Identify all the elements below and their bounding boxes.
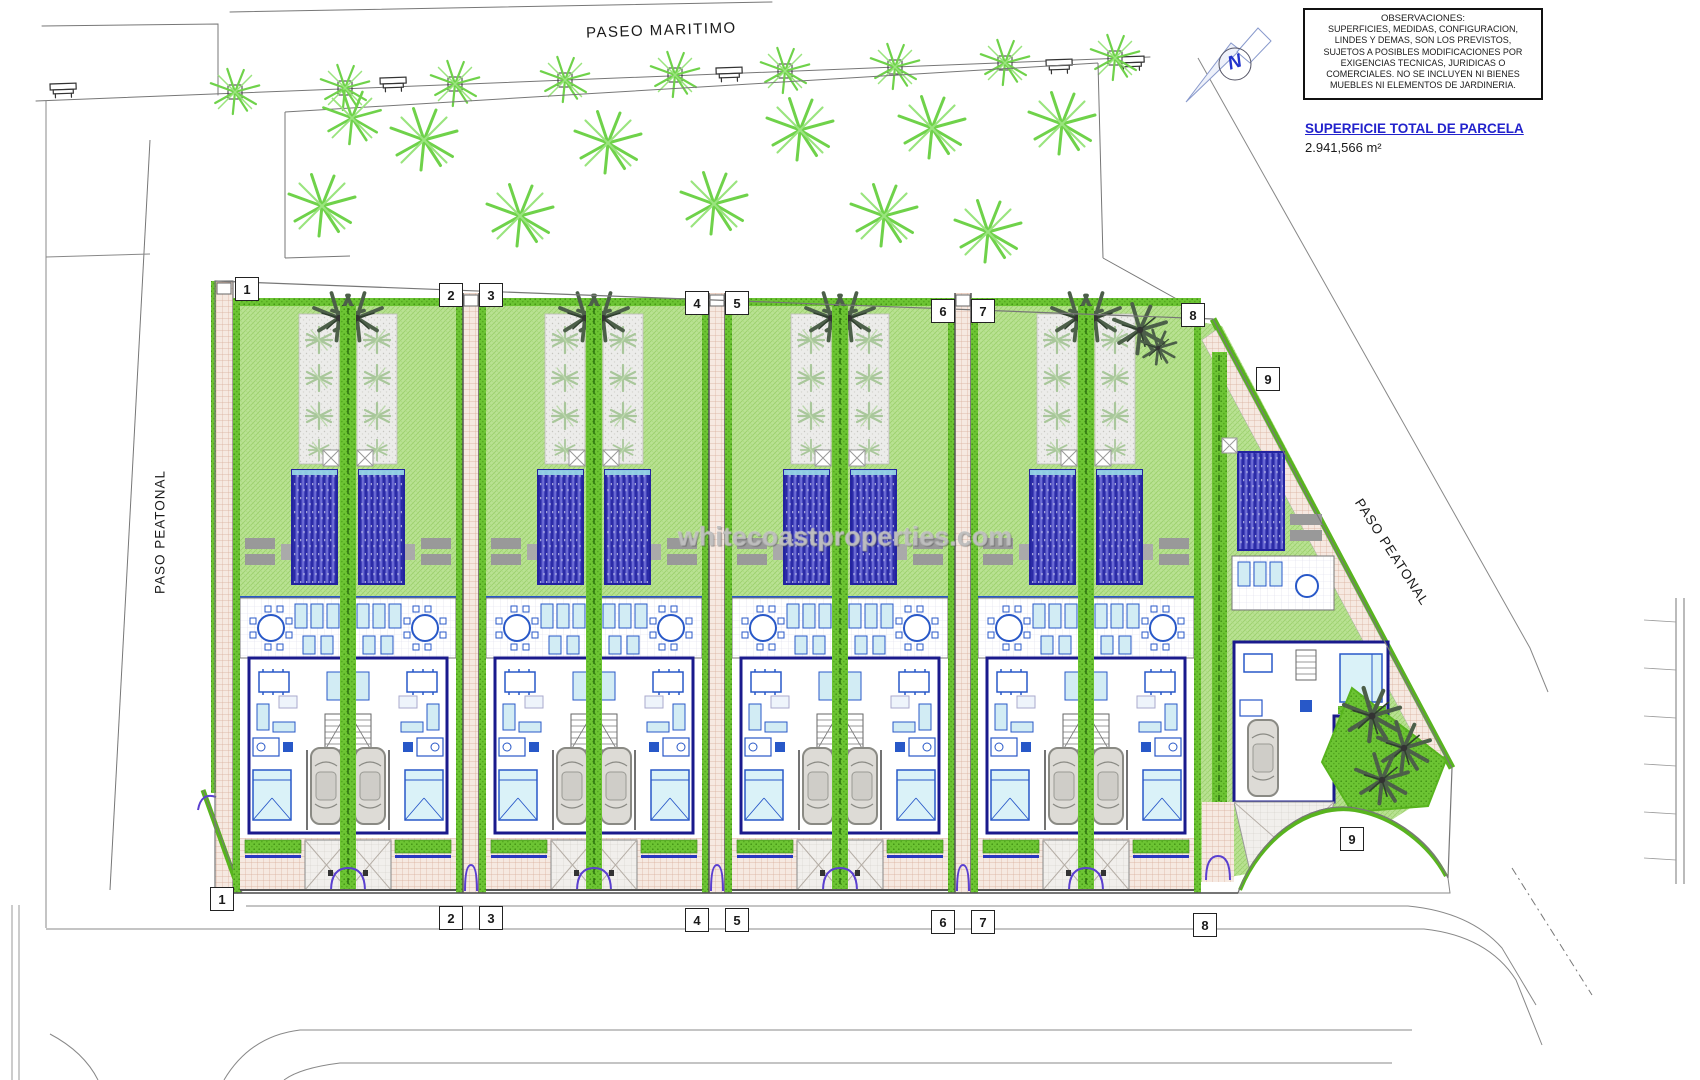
promenade-paseo-maritimo [36,2,1150,114]
alley-6-7 [955,293,971,893]
total-plot-area-title: SUPERFICIE TOTAL DE PARCELA [1305,121,1524,136]
paso-peatonal-left-label: PASO PEATONAL [153,470,168,594]
observations-box: OBSERVACIONES: SUPERFICIES, MEDIDAS, CON… [1303,8,1543,100]
site-plan-canvas: PASEO MARITIMO PASO PEATONAL PASO PEATON… [0,0,1700,1080]
promenade-benches [50,56,1144,98]
observations-body: SUPERFICIES, MEDIDAS, CONFIGURACION, LIN… [1305,24,1541,91]
total-plot-area-value: 2.941,566 m² [1305,140,1382,155]
beach-palm-trees [289,91,1095,262]
alley-4-5 [709,293,725,893]
villa-pair-1-2 [233,293,463,893]
villa-pair-3-4 [479,293,709,893]
alley-2-3 [463,293,479,893]
observations-title: OBSERVACIONES: [1305,13,1541,24]
villa-pair-5-6 [725,293,955,893]
promenade-palm-trees [211,35,1139,114]
parcels-block [198,281,1452,893]
villa-pair-7-8 [971,293,1201,893]
watermark: whitecoastproperties.com [678,522,1013,553]
beach-garden-area [285,63,1200,312]
